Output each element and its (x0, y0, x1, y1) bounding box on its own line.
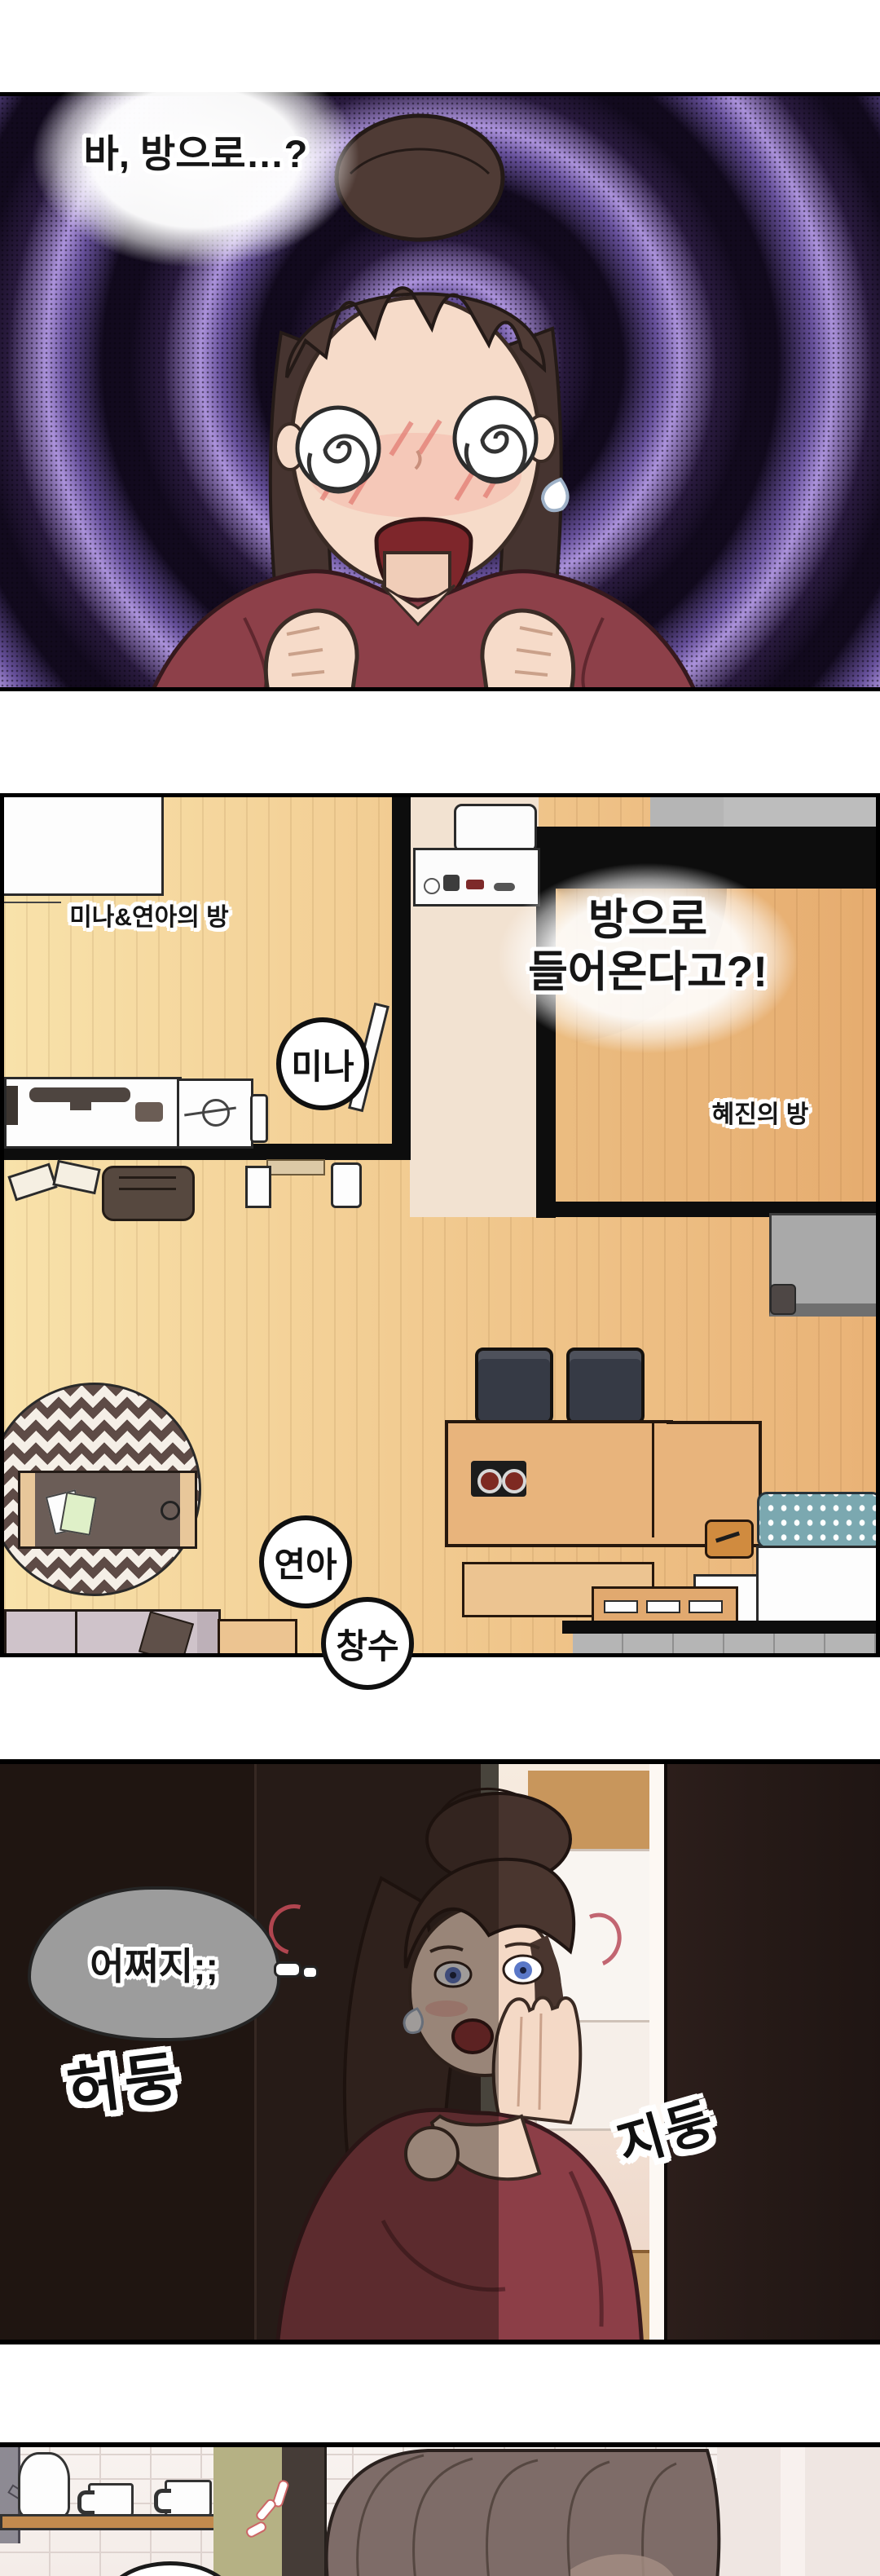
speech-bubble-text: 바, 방으로…? (24, 122, 367, 179)
panel-kitchen (0, 2442, 880, 2576)
back-of-head-hair (0, 2447, 880, 2576)
spiral-eye-right (455, 398, 536, 482)
plan-bubble-line2: 들어온다고?! (489, 937, 807, 999)
chair-line (119, 1176, 176, 1179)
wall-bottom-right (562, 1621, 880, 1634)
speaker (135, 1102, 163, 1122)
pc-tower (7, 1086, 18, 1125)
eye-right (504, 1956, 543, 1983)
spiral-eye-left (297, 408, 379, 492)
closet-top-right (650, 797, 880, 828)
balcony (4, 797, 164, 896)
entry-tile (573, 1634, 880, 1656)
thought-bubble-text: 어쩌지;; (90, 1937, 218, 1991)
stool (566, 1348, 645, 1424)
thought-tail-dot (274, 1961, 301, 1978)
pillow (139, 1611, 194, 1657)
monitor-stand (70, 1102, 91, 1110)
cutting-board (705, 1520, 754, 1559)
wall-vertical-left-room (392, 797, 411, 1160)
phone-on-desk (250, 1094, 268, 1143)
living-sofa (4, 1609, 221, 1657)
webtoon-page: 바, 방으로…? (0, 0, 880, 2576)
drawer (604, 1600, 638, 1613)
coffee-table (18, 1471, 197, 1549)
stove (471, 1461, 526, 1497)
body-shirt (151, 553, 697, 691)
hand-over-mouth (494, 1998, 581, 2124)
gray-sofa (769, 1213, 880, 1317)
drawer (689, 1600, 723, 1613)
shelf-item (266, 1159, 325, 1176)
desk-with-monitor (4, 1077, 182, 1149)
name-circle-changsu-label: 창수 (336, 1619, 398, 1669)
side-table (218, 1619, 297, 1657)
bathroom (756, 1546, 880, 1628)
burner (502, 1469, 526, 1493)
kitchen-counter (445, 1420, 673, 1547)
name-circle-yeona: 연아 (259, 1515, 352, 1608)
monitor (29, 1087, 130, 1102)
cushion-seam (75, 1612, 77, 1657)
table-handle (161, 1501, 180, 1520)
panel-floor-plan: 미나&연아의 방 혜진의 방 미나 연아 방으로 들어온다고?! (0, 793, 880, 1657)
desk-with-lamp (177, 1078, 253, 1149)
phone (331, 1162, 362, 1208)
right-room-label: 혜진의 방 (679, 1094, 842, 1130)
name-circle-mina: 미나 (276, 1017, 369, 1110)
left-room-label: 미나&연아의 방 (43, 897, 255, 933)
thought-tail-dot (301, 1965, 319, 1979)
name-circle-changsu: 창수 (321, 1597, 414, 1690)
chair-line (119, 1188, 176, 1190)
name-circle-mina-label: 미나 (291, 1039, 354, 1089)
burner (477, 1469, 502, 1493)
office-chair (102, 1166, 195, 1221)
panel-doorway: 어쩌지;; 허둥 지둥 (0, 1759, 880, 2344)
sofa-armrest (770, 1284, 796, 1315)
stool (475, 1348, 553, 1424)
drawer (646, 1600, 680, 1613)
counter-divider (652, 1423, 654, 1537)
magazine (59, 1492, 97, 1536)
white-box (245, 1166, 271, 1208)
sfx-left: 허둥 (62, 2031, 186, 2127)
cosmetic-item (443, 875, 460, 891)
name-circle-yeona-label: 연아 (274, 1537, 337, 1587)
dish-rack (757, 1492, 880, 1549)
knife (715, 1531, 740, 1542)
cosmetic-item (424, 878, 440, 894)
